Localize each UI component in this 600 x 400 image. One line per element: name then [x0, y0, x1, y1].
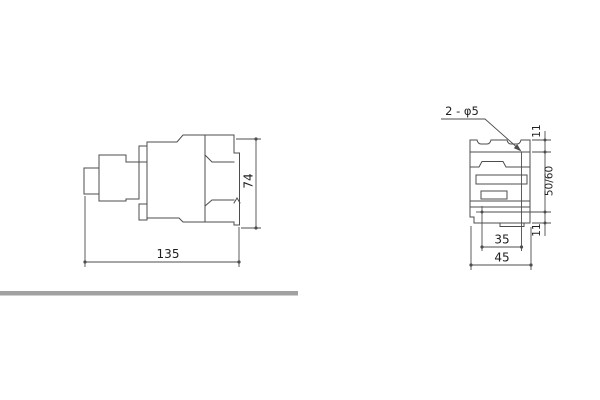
dim-label-135: 135 [157, 247, 180, 261]
dim-label-45: 45 [494, 251, 509, 265]
side-view-endcap [84, 168, 99, 194]
dim-35-arrow-left [480, 245, 483, 248]
technical-drawing-page: 135 74 [0, 0, 600, 400]
divider-bar [0, 291, 298, 296]
dim-135-arrow-right [237, 260, 240, 263]
front-view-dimensions: 2 - φ5 11 50/60 11 35 45 [441, 104, 556, 270]
dim-74-arrow-top [254, 137, 257, 140]
dim-45-arrow-right [529, 263, 532, 266]
dimension-drawing: 135 74 [0, 0, 600, 400]
dim-35-arrow-right [520, 245, 523, 248]
side-view-outline [84, 135, 240, 225]
dim-label-11-bottom: 11 [531, 223, 543, 236]
hole-callout-leader [441, 119, 520, 150]
side-view-channel-bottom [205, 200, 234, 206]
side-view-body [147, 135, 240, 225]
front-view-bottom-tab [500, 223, 524, 227]
dim-label-11-top: 11 [531, 124, 543, 137]
front-view-marking-window [481, 191, 507, 199]
hole-callout-label: 2 - φ5 [445, 104, 479, 118]
side-view-coil-block [99, 155, 139, 201]
side-view-top-tab [139, 146, 147, 162]
dim-45-arrow-left [469, 263, 472, 266]
dim-label-35: 35 [494, 233, 509, 247]
front-view-label-plate [476, 175, 527, 184]
dim-135-arrow-left [83, 260, 86, 263]
side-view-channel-top [205, 155, 234, 162]
dim-74-arrow-bottom [254, 226, 257, 229]
hole-center-mark [481, 211, 484, 214]
dim-label-74: 74 [242, 173, 256, 188]
dim-label-50-60: 50/60 [544, 166, 556, 196]
front-view-tab-line [470, 162, 530, 168]
dim-5060-arrow-b [544, 211, 547, 214]
dim-11top-arrow-a [544, 139, 547, 142]
dim-11bottom-arrow-b [544, 222, 547, 225]
side-view-bottom-tab [139, 204, 147, 220]
dim-11top-arrow-b [544, 151, 547, 154]
